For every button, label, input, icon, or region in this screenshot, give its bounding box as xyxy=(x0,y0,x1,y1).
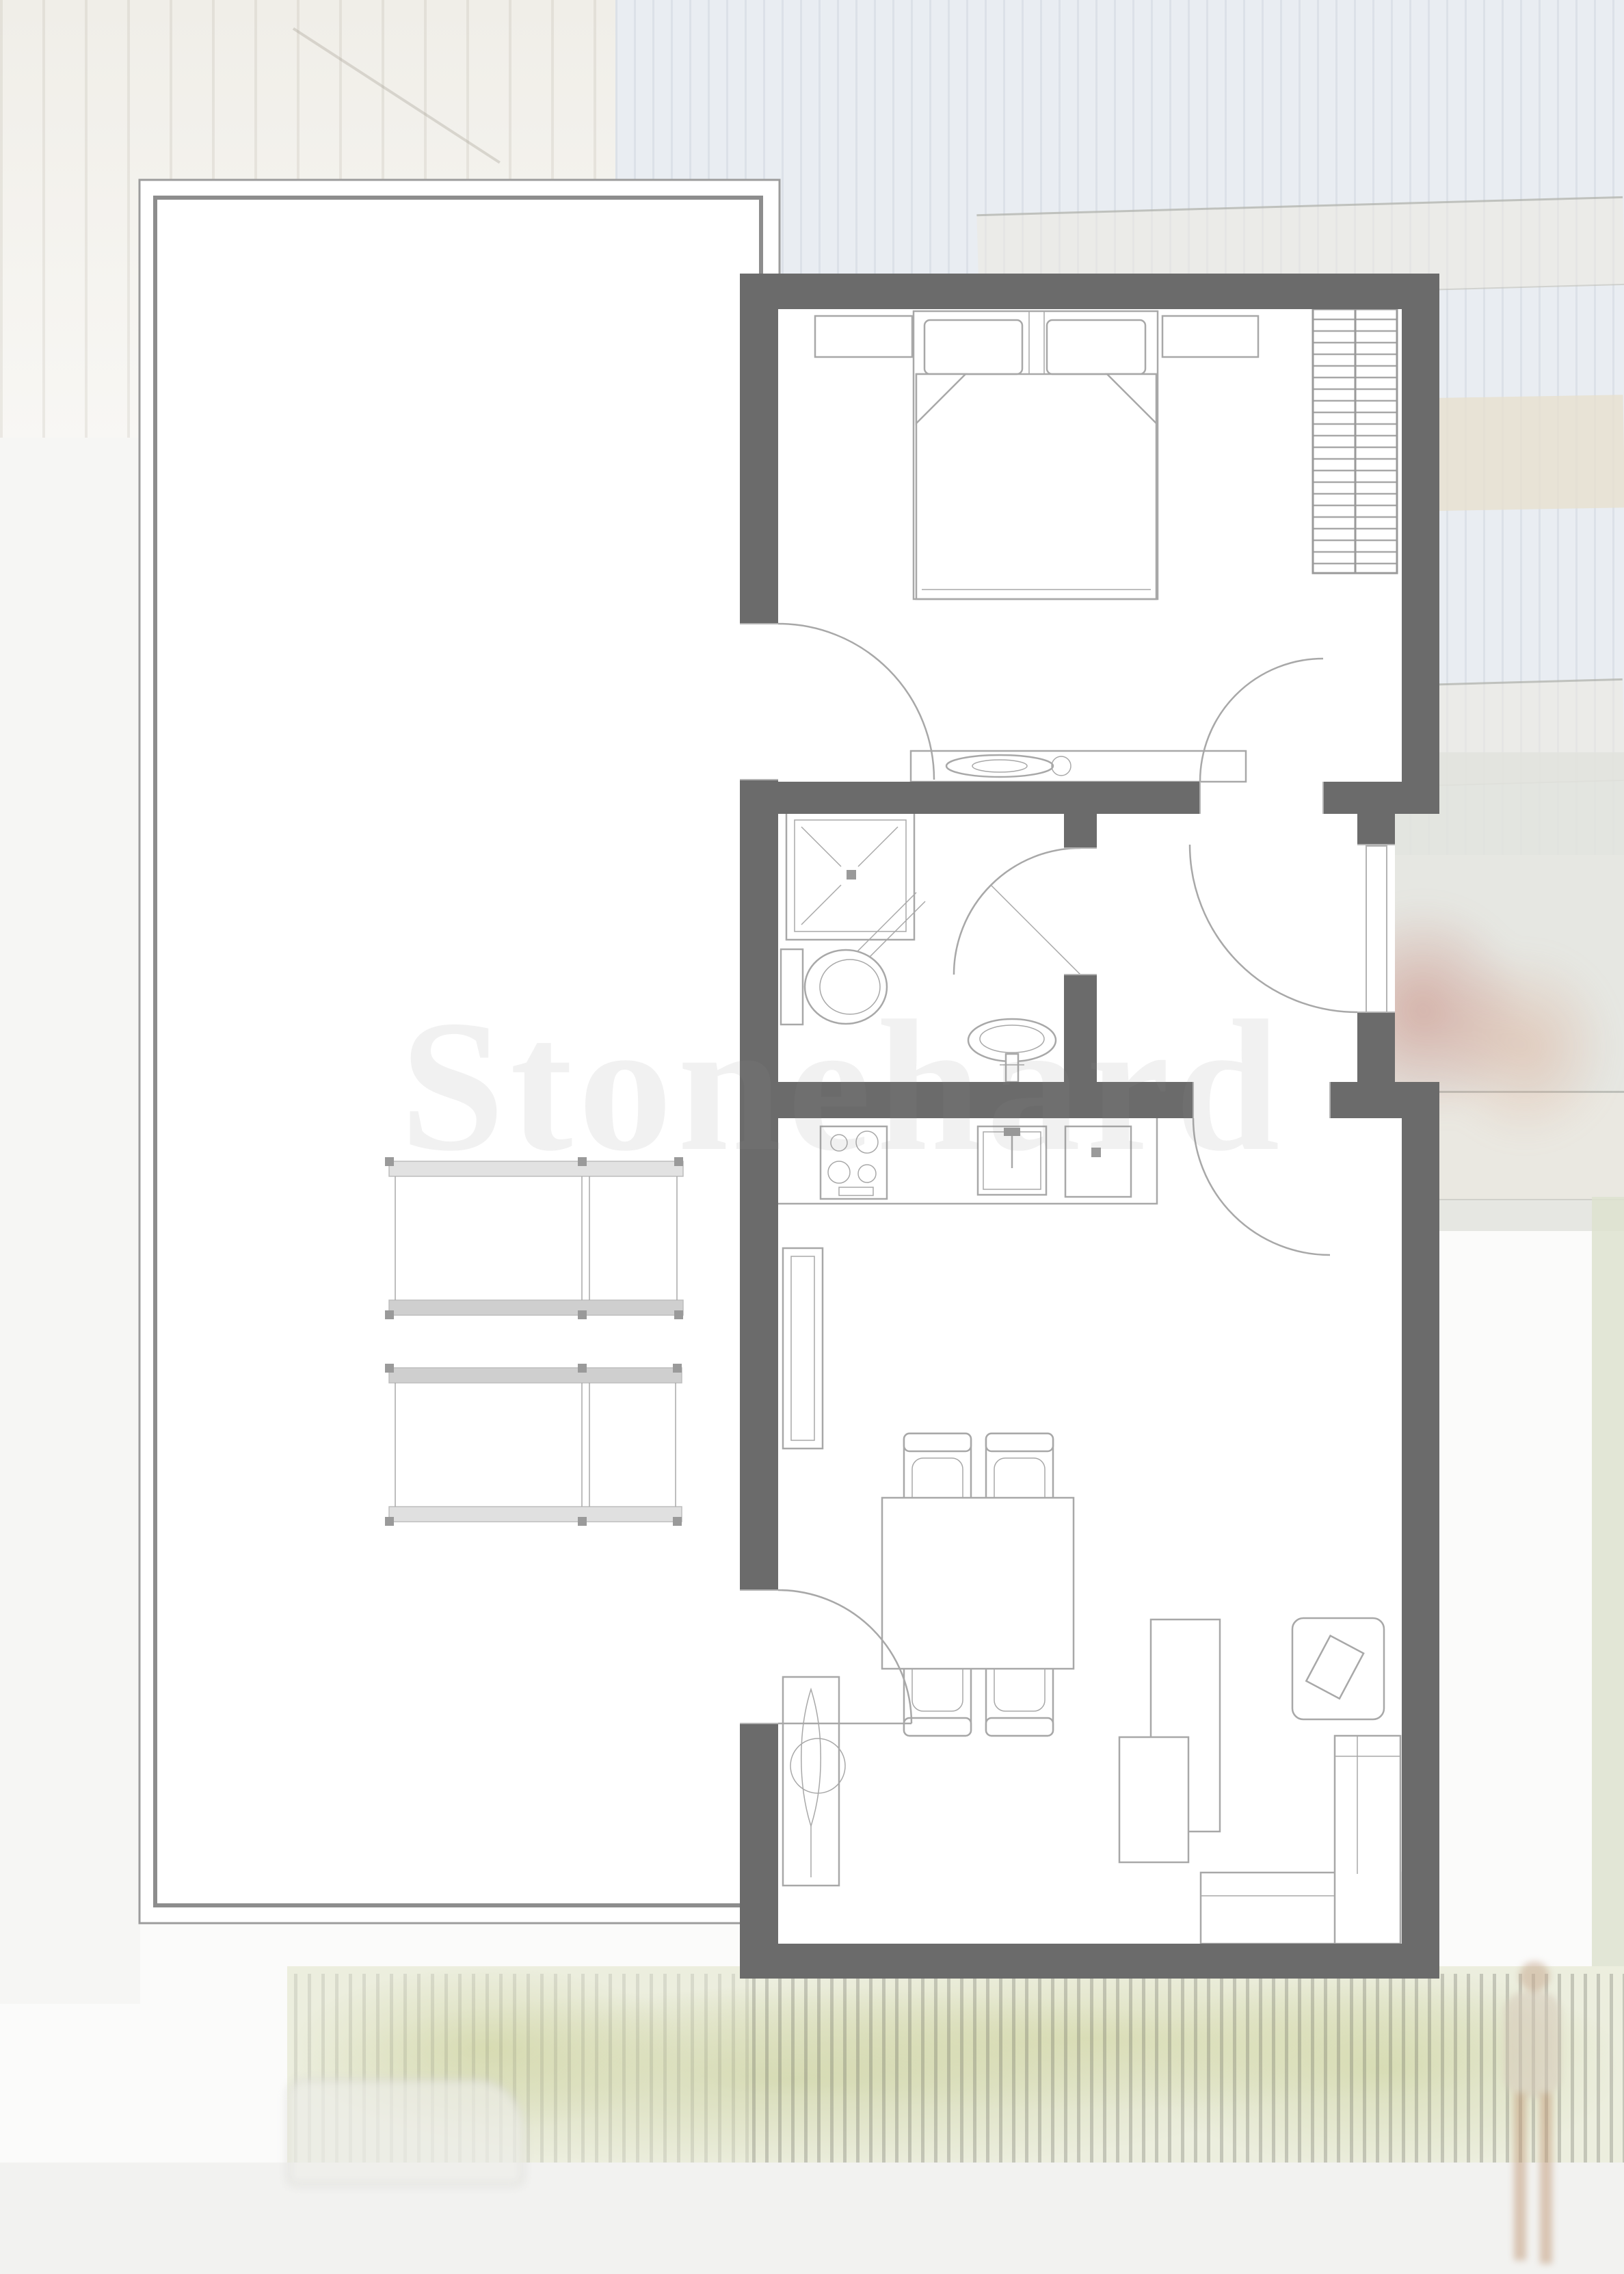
wardrobe xyxy=(1313,309,1397,573)
pillow xyxy=(1047,320,1145,374)
kitchen-unit xyxy=(1065,1126,1131,1197)
floor-plan-page: Stonehard xyxy=(0,0,1624,2274)
stove xyxy=(821,1126,887,1199)
toilet xyxy=(781,949,887,1024)
dining-table xyxy=(882,1498,1074,1669)
nightstand xyxy=(815,316,912,357)
entrance-door-leaf xyxy=(1366,846,1387,1012)
dressing-table xyxy=(911,751,1246,782)
terrace xyxy=(139,180,780,1923)
side-table xyxy=(1292,1618,1384,1719)
pillow xyxy=(924,320,1022,374)
plant xyxy=(783,1677,845,1886)
kitchen-sink xyxy=(978,1126,1046,1195)
floor-plan-svg xyxy=(0,0,1624,2274)
coffee-table xyxy=(1119,1737,1188,1862)
radiator xyxy=(783,1248,823,1449)
nightstand xyxy=(1162,316,1258,357)
